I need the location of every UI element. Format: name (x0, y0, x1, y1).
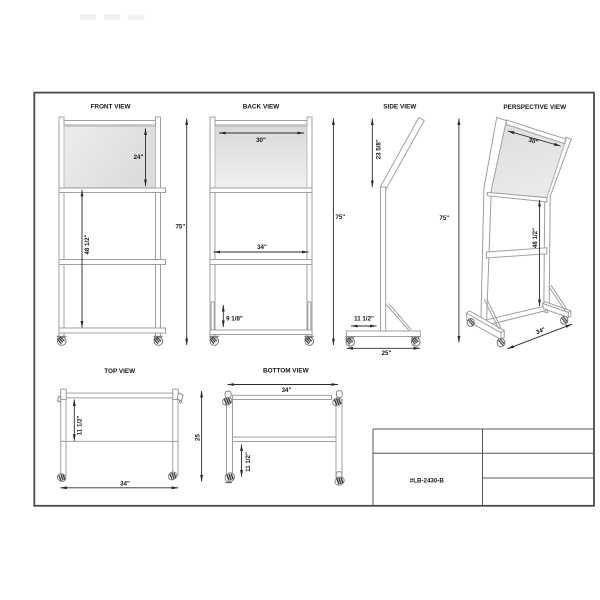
svg-text:75": 75" (335, 214, 345, 221)
svg-text:11 1/2": 11 1/2" (76, 415, 83, 435)
svg-text:PERSPECTIVE VIEW: PERSPECTIVE VIEW (503, 104, 567, 111)
svg-text:BACK VIEW: BACK VIEW (243, 104, 281, 111)
svg-text:34": 34" (282, 387, 292, 394)
svg-text:34": 34" (257, 244, 267, 251)
svg-text:23 5/8": 23 5/8" (375, 139, 382, 159)
svg-text:11 1/2": 11 1/2" (354, 316, 374, 323)
svg-text:30": 30" (256, 137, 266, 144)
svg-text:48 1/2": 48 1/2" (532, 228, 539, 248)
svg-text:9 1/8": 9 1/8" (226, 315, 243, 322)
svg-text:25: 25 (194, 434, 201, 441)
svg-text:11 1/2": 11 1/2" (245, 452, 252, 472)
svg-text:48 1/2": 48 1/2" (84, 234, 91, 254)
svg-text:75": 75" (175, 224, 185, 231)
svg-text:FRONT VIEW: FRONT VIEW (90, 104, 131, 111)
svg-text:#LB-2430-B: #LB-2430-B (410, 477, 445, 484)
svg-text:75": 75" (439, 215, 449, 222)
svg-text:34": 34" (120, 481, 130, 488)
svg-text:25": 25" (382, 350, 392, 357)
svg-text:TOP VIEW: TOP VIEW (104, 368, 136, 375)
svg-text:BOTTOM VIEW: BOTTOM VIEW (263, 368, 310, 375)
svg-text:24": 24" (134, 154, 144, 161)
svg-text:SIDE VIEW: SIDE VIEW (383, 104, 417, 111)
